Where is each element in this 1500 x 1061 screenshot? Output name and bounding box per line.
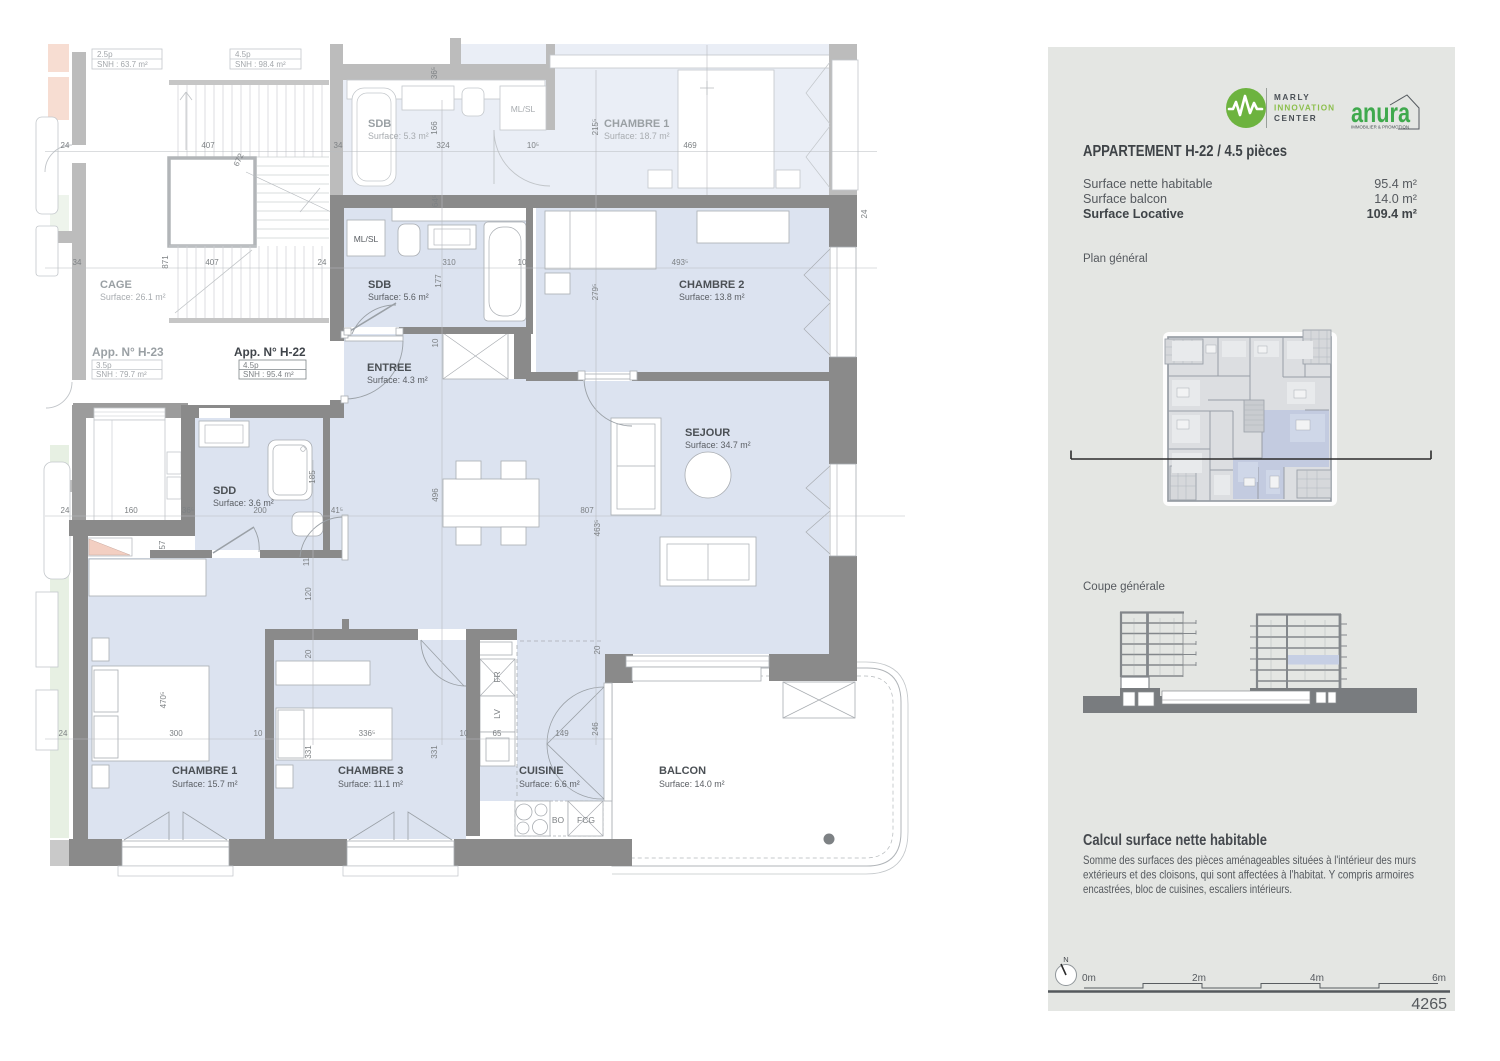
svg-text:24: 24: [61, 506, 70, 515]
svg-text:149: 149: [555, 729, 569, 738]
svg-text:SNH : 98.4 m²: SNH : 98.4 m²: [235, 60, 286, 69]
svg-text:41⁵: 41⁵: [331, 506, 343, 515]
svg-text:871: 871: [161, 255, 170, 269]
svg-text:0m: 0m: [1082, 973, 1096, 984]
svg-text:CHAMBRE 1: CHAMBRE 1: [604, 118, 669, 130]
svg-text:470⁵: 470⁵: [159, 692, 168, 709]
svg-text:310: 310: [442, 258, 456, 267]
svg-text:MARLY: MARLY: [1274, 93, 1310, 102]
svg-text:4265: 4265: [1411, 996, 1447, 1013]
svg-text:CHAMBRE 2: CHAMBRE 2: [679, 279, 744, 291]
svg-text:4.5p: 4.5p: [235, 50, 251, 59]
svg-text:14.0 m²: 14.0 m²: [1374, 192, 1417, 206]
svg-text:SEJOUR: SEJOUR: [685, 427, 730, 439]
svg-text:N: N: [1063, 955, 1068, 964]
svg-text:Coupe générale: Coupe générale: [1083, 581, 1165, 593]
svg-text:CAGE: CAGE: [100, 279, 132, 291]
svg-text:160: 160: [124, 506, 138, 515]
svg-text:407: 407: [201, 141, 215, 150]
svg-text:Surface: 11.1 m²: Surface: 11.1 m²: [338, 779, 403, 789]
svg-text:177: 177: [434, 274, 443, 288]
svg-text:Surface balcon: Surface balcon: [1083, 192, 1167, 206]
svg-text:CUISINE: CUISINE: [519, 765, 564, 777]
svg-text:166: 166: [430, 121, 439, 135]
svg-text:34: 34: [334, 141, 343, 150]
svg-text:65: 65: [493, 729, 502, 738]
svg-text:Surface: 15.7 m²: Surface: 15.7 m²: [172, 779, 238, 789]
svg-text:20: 20: [593, 645, 602, 654]
svg-text:109.4 m²: 109.4 m²: [1367, 207, 1417, 221]
svg-text:Surface: 34.7 m²: Surface: 34.7 m²: [685, 440, 751, 450]
svg-text:encastrées, bloc de cuisines,: encastrées, bloc de cuisines, escaliers …: [1083, 883, 1292, 896]
svg-text:24: 24: [59, 729, 68, 738]
svg-text:24: 24: [318, 258, 327, 267]
svg-text:App. N° H-23: App. N° H-23: [92, 345, 164, 359]
svg-text:2.5p: 2.5p: [97, 50, 113, 59]
svg-text:FR: FR: [492, 671, 502, 682]
svg-text:Plan général: Plan général: [1083, 253, 1148, 265]
svg-text:Surface: 6.6 m²: Surface: 6.6 m²: [519, 779, 580, 789]
svg-text:extérieurs et des cloisons, qu: extérieurs et des cloisons, qui sont aff…: [1083, 869, 1414, 882]
svg-text:185: 185: [308, 470, 317, 484]
svg-text:463⁵: 463⁵: [593, 520, 602, 537]
svg-text:BO: BO: [552, 815, 565, 825]
svg-text:34: 34: [73, 258, 82, 267]
svg-text:4.5p: 4.5p: [243, 361, 259, 370]
svg-text:SDD: SDD: [213, 485, 236, 497]
svg-text:11: 11: [302, 557, 311, 566]
svg-text:331: 331: [430, 745, 439, 759]
svg-text:279⁵: 279⁵: [591, 284, 600, 301]
svg-text:ML/SL: ML/SL: [354, 234, 379, 244]
svg-text:24: 24: [61, 141, 70, 150]
svg-text:Surface: 5.3 m²: Surface: 5.3 m²: [368, 131, 429, 141]
svg-text:Surface: 18.7 m²: Surface: 18.7 m²: [604, 131, 670, 141]
svg-text:CENTER: CENTER: [1274, 114, 1317, 123]
svg-text:6m: 6m: [1432, 973, 1446, 984]
svg-text:Surface: 14.0 m²: Surface: 14.0 m²: [659, 779, 725, 789]
svg-text:CHAMBRE 3: CHAMBRE 3: [338, 765, 403, 777]
svg-text:10: 10: [460, 729, 469, 738]
svg-text:215⁵: 215⁵: [591, 119, 600, 136]
svg-text:Surface nette habitable: Surface nette habitable: [1083, 177, 1213, 191]
svg-text:CHAMBRE 1: CHAMBRE 1: [172, 765, 237, 777]
svg-text:24: 24: [860, 209, 869, 218]
svg-text:ENTREE: ENTREE: [367, 362, 412, 374]
svg-text:SNH : 63.7 m²: SNH : 63.7 m²: [97, 60, 148, 69]
svg-text:Surface: 3.6 m²: Surface: 3.6 m²: [213, 498, 274, 508]
svg-text:Somme des surfaces des pièces: Somme des surfaces des pièces aménageabl…: [1083, 854, 1416, 867]
svg-text:SDB: SDB: [368, 118, 391, 130]
svg-text:36⁵: 36⁵: [430, 67, 439, 79]
svg-text:336⁵: 336⁵: [359, 729, 376, 738]
svg-text:20: 20: [304, 649, 313, 658]
svg-text:Calcul surface nette habitable: Calcul surface nette habitable: [1083, 832, 1267, 849]
svg-text:407: 407: [205, 258, 219, 267]
svg-text:FCG: FCG: [577, 815, 595, 825]
svg-text:BALCON: BALCON: [659, 765, 706, 777]
svg-text:SDB: SDB: [368, 279, 391, 291]
svg-text:64⁵: 64⁵: [431, 195, 440, 207]
svg-text:496: 496: [431, 488, 440, 502]
svg-text:Surface: 4.3 m²: Surface: 4.3 m²: [367, 375, 428, 385]
svg-text:3.5p: 3.5p: [96, 361, 112, 370]
svg-text:10: 10: [254, 729, 263, 738]
svg-text:246: 246: [591, 722, 600, 736]
svg-text:95.4 m²: 95.4 m²: [1374, 177, 1417, 191]
svg-text:Surface Locative: Surface Locative: [1083, 207, 1184, 221]
svg-text:493⁵: 493⁵: [672, 258, 689, 267]
svg-text:Surface: 26.1 m²: Surface: 26.1 m²: [100, 292, 166, 302]
svg-text:300: 300: [169, 729, 183, 738]
svg-text:469: 469: [683, 141, 697, 150]
svg-text:anura: anura: [1351, 97, 1410, 128]
svg-text:2m: 2m: [1192, 973, 1206, 984]
svg-text:INNOVATION: INNOVATION: [1274, 104, 1335, 113]
svg-text:Surface: 13.8 m²: Surface: 13.8 m²: [679, 292, 745, 302]
svg-text:Surface: 5.6 m²: Surface: 5.6 m²: [368, 292, 429, 302]
svg-text:10: 10: [431, 338, 440, 347]
svg-text:324: 324: [436, 141, 450, 150]
svg-text:LV: LV: [492, 709, 502, 719]
svg-text:807: 807: [580, 506, 594, 515]
svg-text:IMMOBILIER & PROMOTION: IMMOBILIER & PROMOTION: [1351, 125, 1409, 131]
svg-text:SNH : 79.7 m²: SNH : 79.7 m²: [96, 370, 147, 379]
svg-text:36⁵: 36⁵: [182, 506, 194, 515]
svg-text:App. N° H-22: App. N° H-22: [234, 345, 306, 359]
svg-text:APPARTEMENT H-22 / 4.5 pièces: APPARTEMENT H-22 / 4.5 pièces: [1083, 143, 1287, 160]
svg-text:ML/SL: ML/SL: [511, 104, 536, 114]
svg-text:10: 10: [518, 258, 527, 267]
svg-text:120: 120: [304, 587, 313, 601]
svg-text:57: 57: [158, 540, 167, 549]
svg-text:10⁵: 10⁵: [527, 141, 539, 150]
svg-text:4m: 4m: [1310, 973, 1324, 984]
svg-text:331: 331: [304, 745, 313, 759]
svg-text:SNH : 95.4 m²: SNH : 95.4 m²: [243, 370, 294, 379]
